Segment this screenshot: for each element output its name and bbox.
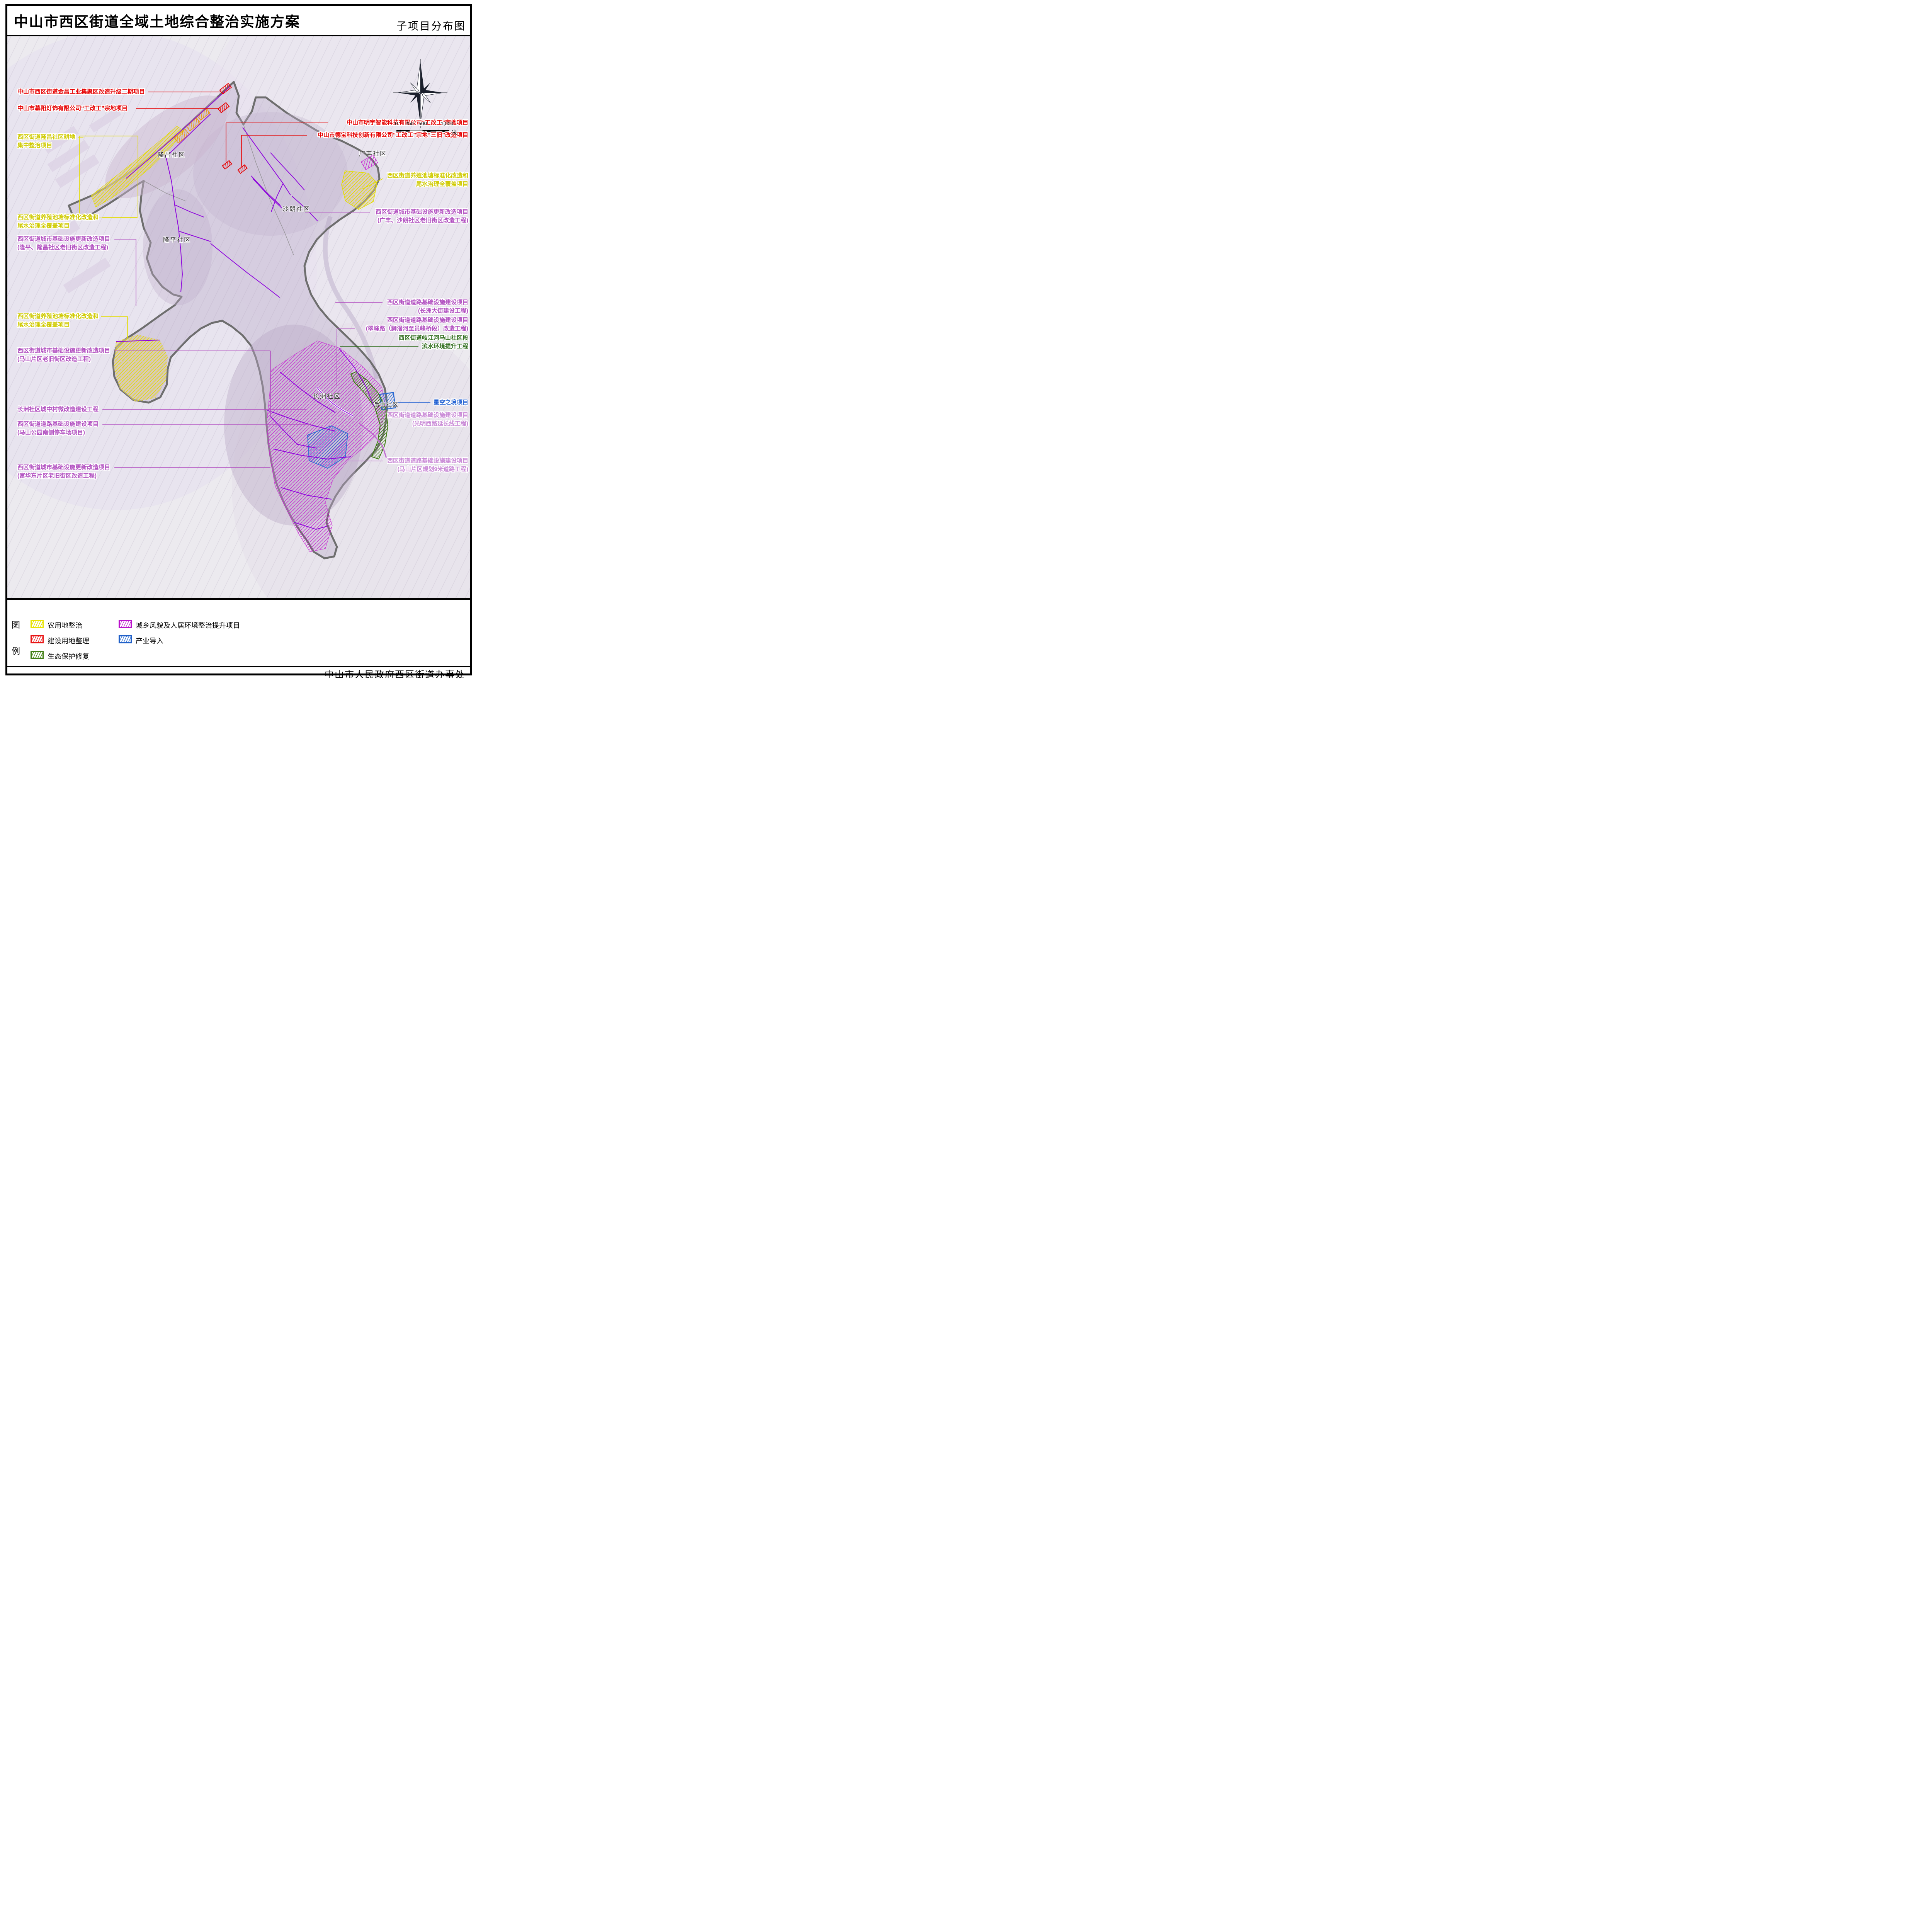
footer-agency: 中山市人民政府西区街道办事处 <box>325 667 465 678</box>
plan-sheet: 中山市西区街道全域土地综合整治实施方案 子项目分布图 <box>0 0 479 678</box>
map-graphic <box>7 36 472 598</box>
title-separator <box>5 35 472 36</box>
page-subtitle: 子项目分布图 <box>396 18 466 33</box>
page-title: 中山市西区街道全域土地综合整治实施方案 <box>14 10 300 31</box>
industry-swatch-icon <box>119 635 132 643</box>
agriculture-swatch-icon <box>31 620 44 628</box>
map-legend-separator <box>5 598 472 600</box>
construction-swatch-icon <box>31 635 44 643</box>
ecology-swatch-icon <box>31 651 44 659</box>
map-area <box>7 36 472 598</box>
urban-swatch-icon <box>119 620 132 628</box>
legend-title-top: 图 <box>12 618 20 631</box>
legend-title-bottom: 例 <box>12 645 20 657</box>
scale-bar <box>396 130 449 133</box>
